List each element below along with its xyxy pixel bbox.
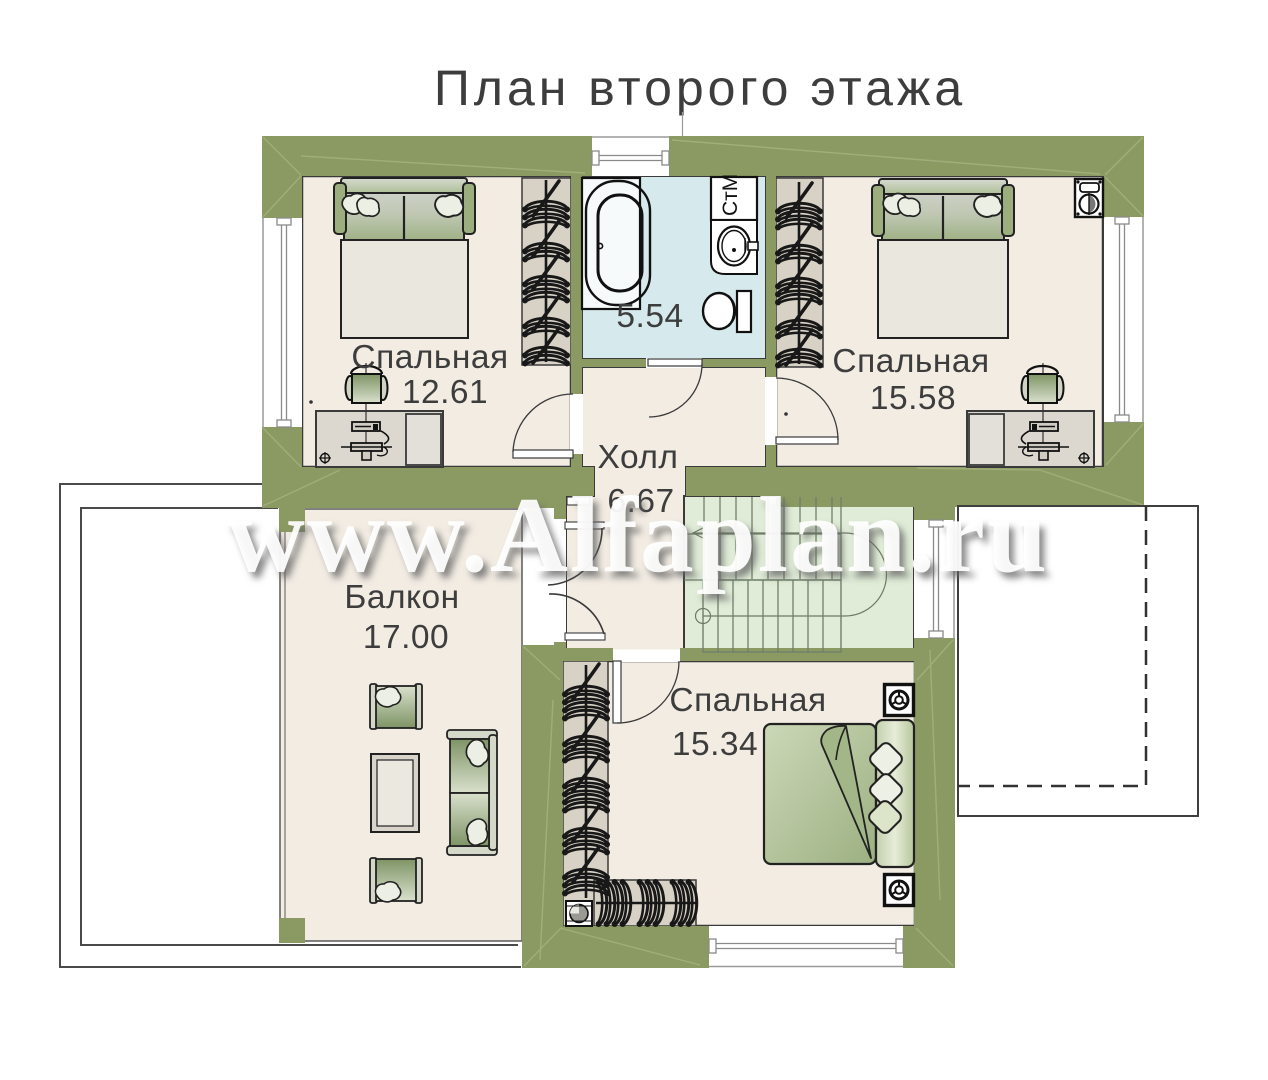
svg-text:Холл: Холл (598, 439, 679, 476)
svg-text:5.54: 5.54 (616, 298, 683, 335)
svg-text:15.34: 15.34 (672, 726, 758, 763)
svg-text:15.58: 15.58 (870, 380, 956, 417)
svg-text:12.61: 12.61 (402, 374, 488, 411)
svg-text:План второго этажа: План второго этажа (434, 60, 966, 116)
svg-text:Спальная: Спальная (669, 682, 826, 719)
svg-text:17.00: 17.00 (363, 619, 449, 656)
svg-text:СтМ: СтМ (719, 174, 742, 216)
svg-text:Спальная: Спальная (832, 343, 989, 380)
svg-text:Спальная: Спальная (351, 339, 508, 376)
